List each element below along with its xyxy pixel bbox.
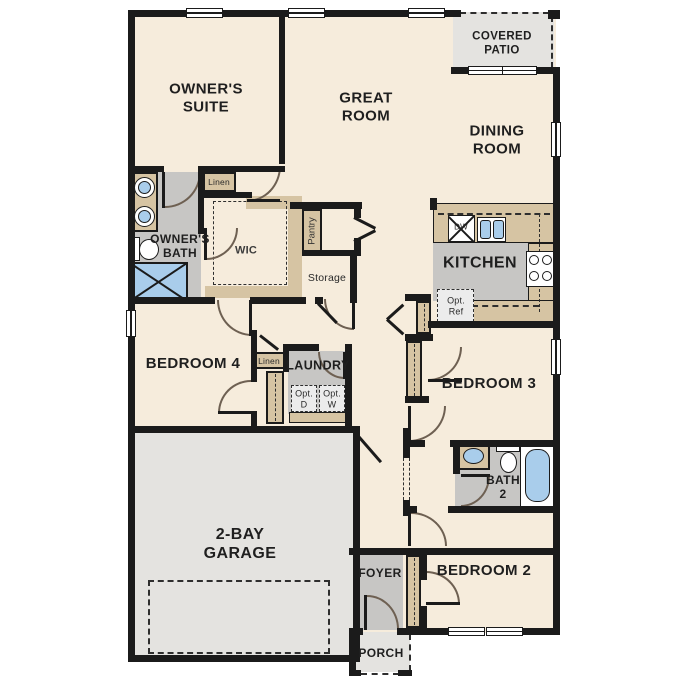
wall-hall-stub-a bbox=[300, 297, 306, 304]
bedroom2-label: BEDROOM 2 bbox=[437, 562, 531, 580]
porch-label: PORCH bbox=[358, 646, 403, 660]
patio-dashed-top bbox=[460, 12, 549, 14]
kitchen-counter-bottom bbox=[470, 300, 556, 322]
linen-hall-closet bbox=[266, 371, 284, 424]
wall-kitchen-bottom bbox=[428, 321, 556, 328]
bath2-label: BATH 2 bbox=[486, 473, 520, 501]
kitchen-sink-basin-left bbox=[480, 220, 491, 239]
bedroom3-label: BEDROOM 3 bbox=[442, 375, 536, 393]
wall-bath2-bottom-stub bbox=[403, 506, 417, 513]
wall-corner-door-upper bbox=[354, 202, 361, 218]
wall-bed4-right-upper bbox=[251, 330, 257, 382]
wall-porch-left bbox=[349, 632, 356, 674]
wall-garage-top bbox=[128, 426, 360, 433]
wall-foyer-front-right bbox=[397, 628, 413, 635]
burner-1 bbox=[529, 255, 539, 265]
storage-label: Storage bbox=[308, 272, 346, 284]
kitchen-label: KITCHEN bbox=[443, 255, 517, 274]
patio-dashed-right bbox=[551, 16, 553, 68]
window-patio-door-right bbox=[502, 66, 537, 75]
wall-hall-closet-top bbox=[405, 294, 431, 301]
kitchen-counter-dash-bottom bbox=[472, 305, 539, 307]
burner-3 bbox=[529, 271, 539, 281]
wall-bath2-left bbox=[453, 440, 460, 474]
vanity-sink-2-basin bbox=[138, 210, 151, 223]
storage-door-leaf bbox=[352, 299, 355, 329]
wall-garage-right bbox=[353, 426, 360, 662]
owners-bath-label: OWNER'S BATH bbox=[150, 232, 210, 260]
wall-bath-bed4-b bbox=[250, 297, 303, 304]
wall-hall-stub-b bbox=[315, 297, 323, 304]
bedroom3-closet bbox=[406, 341, 422, 399]
wall-suite-bottom-left bbox=[128, 166, 164, 172]
shower-x-line-1 bbox=[133, 264, 188, 300]
wall-patio-bottom-right bbox=[536, 67, 560, 74]
hall-dashed-left bbox=[403, 458, 404, 500]
kitchen-sink-basin-right bbox=[493, 220, 504, 239]
opt-w-label: Opt. W bbox=[323, 388, 341, 409]
dw-label: DW bbox=[454, 222, 468, 231]
wall-bed4-right-lower bbox=[251, 411, 257, 427]
wall-porch-corner-left bbox=[349, 670, 361, 676]
owners-shower bbox=[131, 262, 188, 300]
laundry-label: LAUNDRY bbox=[286, 359, 349, 374]
dining-room-label: DINING ROOM bbox=[470, 122, 525, 157]
wall-suite-bottom-right bbox=[198, 166, 285, 172]
bath2-toilet-bowl bbox=[500, 452, 517, 473]
linen-hall-label: Linen bbox=[258, 356, 280, 366]
burner-2 bbox=[542, 255, 552, 265]
porch-dashed-bottom bbox=[361, 673, 399, 675]
burner-4 bbox=[542, 271, 552, 281]
window-great-room-top bbox=[288, 8, 325, 18]
garage-label: 2-BAY GARAGE bbox=[204, 526, 277, 564]
bedroom4-door-leaf bbox=[218, 411, 251, 414]
laundry-counter bbox=[289, 412, 346, 423]
porch-dashed-right bbox=[409, 634, 411, 671]
wall-porch-corner-right bbox=[398, 670, 412, 676]
wall-bed2-bottom-right bbox=[522, 628, 560, 635]
wall-patio-post-left bbox=[451, 10, 461, 17]
wall-bed2-closet-right-upper bbox=[421, 555, 427, 580]
window-patio-door-left bbox=[468, 66, 503, 75]
wall-right-b bbox=[553, 156, 560, 340]
wall-right-a bbox=[553, 68, 560, 124]
owners-suite-label: OWNER'S SUITE bbox=[169, 80, 243, 115]
wall-left-lower bbox=[128, 336, 135, 662]
linen-upper-label: Linen bbox=[208, 177, 230, 187]
shower-x-line-2 bbox=[133, 262, 188, 299]
window-bedroom2-bottom-right bbox=[486, 627, 523, 636]
window-bedroom3-right bbox=[551, 339, 561, 375]
wall-bath-wic-divider bbox=[198, 172, 204, 234]
wall-bath2-bottom bbox=[448, 506, 556, 513]
opt-ref-label: Opt. Ref bbox=[447, 295, 465, 316]
wall-pantry-top bbox=[290, 202, 362, 209]
garage-parking-outline bbox=[148, 580, 330, 654]
bedroom2-closet bbox=[406, 555, 421, 628]
wall-garage-bottom bbox=[128, 655, 360, 662]
bedroom2-door-leaf bbox=[426, 602, 460, 605]
window-bedroom4-left bbox=[126, 310, 136, 337]
wall-under-linen bbox=[200, 192, 252, 198]
wall-bed3-bath2 bbox=[450, 440, 556, 447]
wall-kitchen-left-stub bbox=[430, 198, 437, 210]
wall-left-upper bbox=[128, 10, 135, 312]
window-dining-right bbox=[551, 122, 561, 157]
wall-bed2-closet-right-lower bbox=[421, 606, 427, 628]
wall-laundry-right bbox=[345, 344, 352, 429]
covered-patio-label: COVERED PATIO bbox=[472, 30, 532, 57]
hall-dashed-right bbox=[409, 458, 410, 500]
wall-bed3-closet-bottom bbox=[405, 396, 429, 403]
foyer-label: FOYER bbox=[358, 566, 401, 580]
floor-plan: OWNER'S SUITE GREAT ROOM DINING ROOM COV… bbox=[0, 0, 687, 687]
wall-bath-bed4-a bbox=[128, 297, 215, 304]
bath2-sink bbox=[463, 448, 484, 464]
wall-suite-partition bbox=[279, 10, 285, 164]
hall-sliver-door-leaf bbox=[408, 512, 411, 546]
wall-bedroom2-top bbox=[349, 548, 556, 555]
window-owners-suite-top bbox=[186, 8, 223, 18]
stove bbox=[526, 251, 555, 287]
great-room-label: GREAT ROOM bbox=[339, 89, 392, 124]
wic-band-right bbox=[288, 196, 302, 293]
wall-patio-post-right bbox=[548, 10, 560, 19]
bedroom4-label: BEDROOM 4 bbox=[146, 355, 240, 373]
window-bedroom2-bottom-left bbox=[448, 627, 485, 636]
window-great-room-top-2 bbox=[408, 8, 445, 18]
wall-hall-closet-bottom bbox=[405, 334, 433, 341]
wall-bed3-bath2-stub bbox=[403, 440, 425, 447]
wall-storage-right bbox=[350, 256, 357, 303]
opt-d-label: Opt. D bbox=[295, 388, 313, 409]
hall-closet-strip bbox=[416, 301, 431, 334]
wall-right-c bbox=[553, 374, 560, 635]
vanity-sink-1-basin bbox=[138, 181, 151, 194]
bath2-tub-basin bbox=[525, 449, 550, 502]
pantry-label: Pantry bbox=[307, 217, 318, 244]
wic-label: WIC bbox=[235, 245, 257, 258]
owners-suite-door-leaf bbox=[247, 199, 280, 202]
